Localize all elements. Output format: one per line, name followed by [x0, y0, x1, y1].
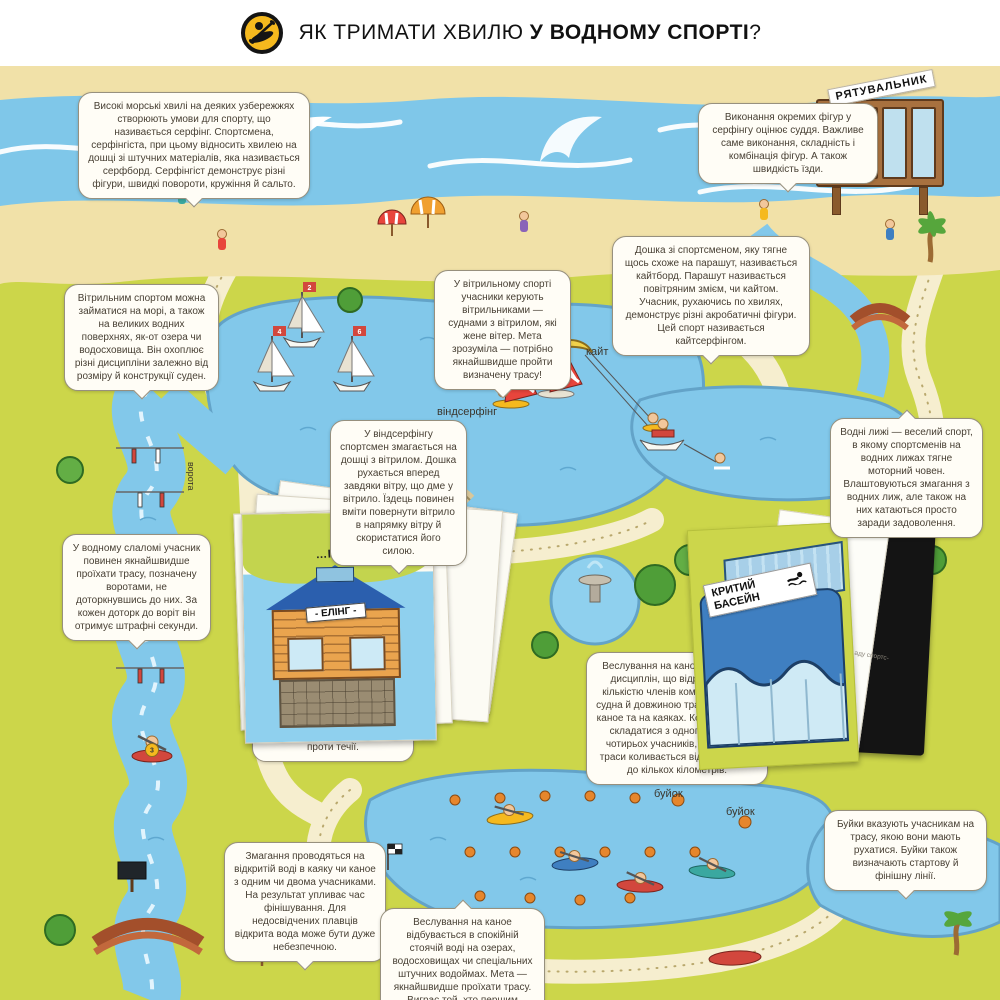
boathouse-window	[287, 637, 324, 672]
callout-sailing-race: У вітрильному спорті учасники керують ві…	[434, 270, 571, 390]
svg-text:3: 3	[150, 748, 154, 755]
callout-open-water: Змагання проводяться на відкритій воді в…	[224, 842, 386, 962]
label-buoy-2: буйок	[726, 806, 755, 818]
page-title: ЯК ТРИМАТИ ХВИЛЮ У ВОДНОМУ СПОРТІ?	[299, 21, 762, 45]
kayak-paddler-icon	[239, 10, 285, 56]
svg-text:4: 4	[278, 329, 282, 336]
fountain-pond	[551, 556, 639, 644]
label-gates: ворота	[186, 462, 196, 491]
label-buoy-1: буйок	[654, 788, 683, 800]
popup-book-pool: …зроблений …аду спортс- …оцінює ви- КРИТ…	[695, 520, 940, 770]
svg-text:6: 6	[358, 329, 362, 336]
callout-kiteboard: Дошка зі спортсменом, яку тягне щось схо…	[612, 236, 810, 356]
label-windsurfing: віндсерфінг	[437, 406, 497, 418]
pool-glass-wall	[704, 646, 849, 746]
callout-sailing-overview: Вітрильним спортом можна займатися на мо…	[64, 284, 219, 391]
tower-window	[911, 107, 936, 179]
tower-legs	[816, 187, 944, 215]
callout-surfing: Високі морські хвилі на деяких узбережжя…	[78, 92, 310, 199]
boathouse: - ЕЛІНГ -	[271, 564, 402, 728]
book-page: 3 2 4 6	[0, 0, 1000, 1000]
callout-water-ski: Водні лижі — веселий спорт, в якому спор…	[830, 418, 983, 538]
svg-text:2: 2	[308, 285, 312, 292]
boathouse-window	[349, 636, 386, 671]
tower-window	[882, 107, 907, 179]
page-header: ЯК ТРИМАТИ ХВИЛЮ У ВОДНОМУ СПОРТІ?	[0, 0, 1000, 66]
popup-pool-front-page: КРИТИЙ БАСЕЙН	[687, 522, 859, 770]
callout-surf-judging: Виконання окремих фігур у серфінгу оціню…	[698, 103, 878, 184]
label-kite: кайт	[586, 346, 608, 358]
callout-buoys: Буйки вказують учасникам на трасу, якою …	[824, 810, 987, 891]
boathouse-stone-base	[279, 678, 396, 728]
callout-water-slalom: У водному слаломі учасник повинен якнайш…	[62, 534, 211, 641]
callout-windsurfing: У віндсерфінгу спортсмен змагається на д…	[330, 420, 467, 566]
callout-flat-water: Веслування на каное відбувається в спокі…	[380, 908, 545, 1000]
boathouse-roof-plate	[316, 567, 354, 583]
